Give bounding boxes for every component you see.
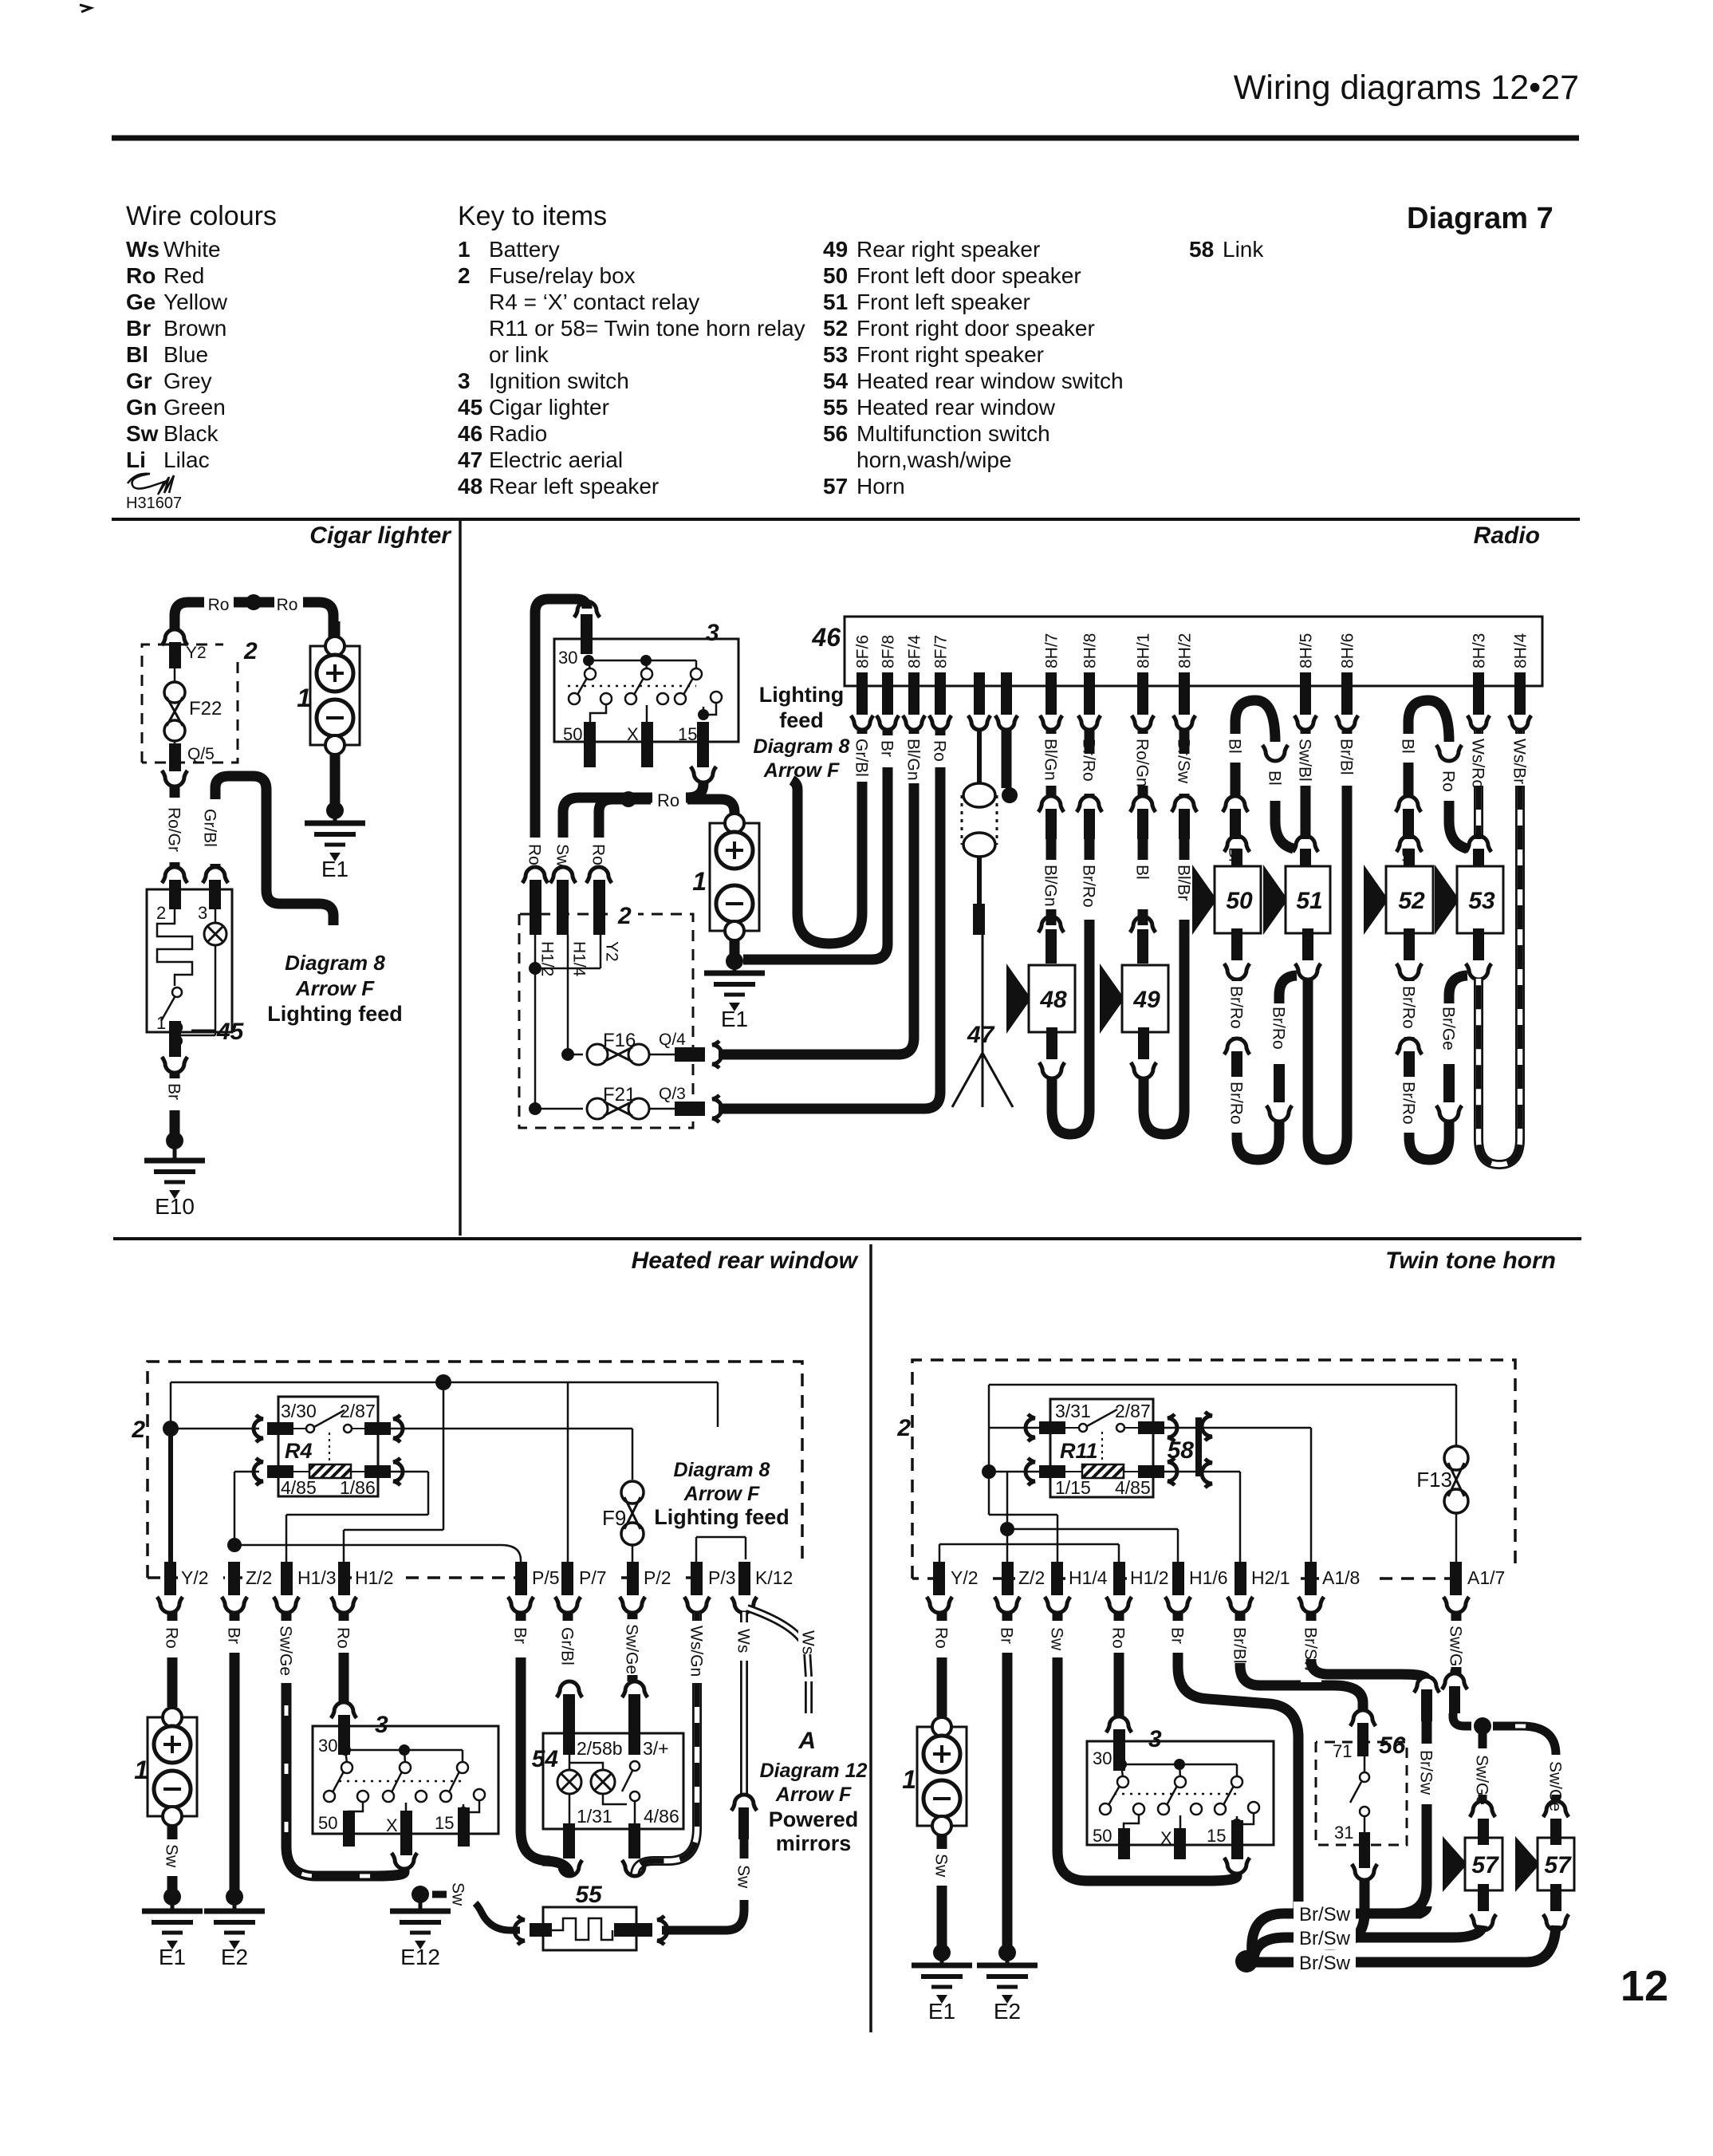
- svg-text:E12: E12: [400, 1945, 440, 1969]
- svg-text:Br/Sw: Br/Sw: [1299, 1953, 1351, 1974]
- svg-text:Br: Br: [126, 316, 151, 341]
- svg-text:F22: F22: [189, 698, 222, 719]
- svg-text:horn,wash/wipe: horn,wash/wipe: [856, 447, 1012, 472]
- svg-text:Br/Ro: Br/Ro: [1400, 986, 1418, 1029]
- svg-text:Sw/Bl: Sw/Bl: [1296, 739, 1314, 782]
- svg-text:55: 55: [823, 395, 848, 420]
- svg-text:Ro: Ro: [277, 596, 298, 614]
- svg-text:Front right speaker: Front right speaker: [856, 342, 1044, 367]
- svg-text:Lighting feed: Lighting feed: [654, 1505, 789, 1529]
- svg-text:Ro: Ro: [163, 1627, 181, 1649]
- svg-text:F21: F21: [603, 1084, 636, 1106]
- svg-text:48: 48: [458, 474, 482, 499]
- svg-text:3/+: 3/+: [643, 1738, 669, 1759]
- svg-text:47: 47: [458, 447, 482, 472]
- svg-text:Ro: Ro: [126, 263, 156, 288]
- svg-text:Powered: Powered: [769, 1807, 859, 1831]
- svg-text:Ws: Ws: [126, 237, 159, 262]
- svg-text:K/12: K/12: [755, 1567, 793, 1588]
- svg-text:Br/Sw: Br/Sw: [1299, 1904, 1351, 1925]
- svg-text:Y2: Y2: [603, 941, 621, 962]
- svg-text:Lilac: Lilac: [163, 447, 210, 472]
- svg-text:H1/3: H1/3: [297, 1567, 337, 1588]
- svg-text:Key to items: Key to items: [458, 201, 607, 231]
- svg-text:Cigar lighter: Cigar lighter: [309, 522, 452, 549]
- svg-text:Gr/Bl: Gr/Bl: [201, 809, 219, 847]
- svg-text:71: 71: [1333, 1741, 1352, 1761]
- svg-text:8H/1: 8H/1: [1134, 633, 1152, 668]
- svg-text:56: 56: [823, 421, 848, 446]
- svg-text:3: 3: [458, 369, 471, 393]
- svg-text:8H/7: 8H/7: [1042, 633, 1061, 668]
- svg-text:Cigar lighter: Cigar lighter: [489, 395, 609, 420]
- svg-text:3: 3: [706, 620, 719, 646]
- svg-text:Br/Bl: Br/Bl: [1337, 739, 1356, 775]
- svg-text:Gr/Bl: Gr/Bl: [853, 739, 871, 777]
- svg-text:E1: E1: [928, 1999, 955, 2024]
- svg-text:Arrow F: Arrow F: [295, 976, 375, 1000]
- svg-text:50: 50: [823, 263, 848, 288]
- svg-text:57: 57: [1544, 1852, 1572, 1878]
- svg-text:E1: E1: [159, 1945, 186, 1969]
- svg-text:X: X: [1160, 1828, 1172, 1848]
- svg-text:or link: or link: [489, 342, 549, 367]
- svg-text:H1/6: H1/6: [1189, 1567, 1228, 1588]
- svg-text:4/85: 4/85: [281, 1477, 317, 1498]
- svg-text:Sw: Sw: [163, 1844, 181, 1868]
- svg-text:Ws/Gn: Ws/Gn: [687, 1626, 706, 1677]
- svg-text:H1/2: H1/2: [1130, 1567, 1169, 1588]
- svg-text:Ws/Ro: Ws/Ro: [1469, 739, 1487, 789]
- svg-text:feed: feed: [779, 708, 824, 732]
- svg-text:4/86: 4/86: [644, 1806, 679, 1827]
- svg-text:31: 31: [1334, 1823, 1353, 1843]
- svg-text:Q/4: Q/4: [659, 1031, 686, 1049]
- svg-text:8H/4: 8H/4: [1511, 633, 1530, 668]
- svg-text:Ro/Gr: Ro/Gr: [165, 807, 183, 852]
- svg-text:White: White: [163, 237, 221, 262]
- svg-text:30: 30: [1093, 1748, 1112, 1768]
- svg-text:Fuse/relay box: Fuse/relay box: [489, 263, 636, 288]
- svg-text:1: 1: [156, 1013, 166, 1033]
- svg-text:1/86: 1/86: [340, 1477, 376, 1498]
- svg-text:Li: Li: [126, 447, 146, 472]
- svg-text:52: 52: [823, 316, 848, 341]
- svg-text:Br: Br: [878, 740, 896, 757]
- svg-text:Q/3: Q/3: [659, 1085, 686, 1103]
- svg-text:Battery: Battery: [489, 237, 560, 262]
- svg-text:54: 54: [532, 1746, 559, 1772]
- svg-text:Heated rear window: Heated rear window: [856, 395, 1056, 420]
- svg-text:8F/4: 8F/4: [905, 635, 923, 668]
- svg-text:Bl/Gn: Bl/Gn: [1042, 739, 1060, 781]
- svg-text:Bl: Bl: [1266, 771, 1284, 786]
- svg-text:Br: Br: [225, 1627, 243, 1644]
- svg-text:58: 58: [1168, 1437, 1195, 1464]
- svg-text:8F/8: 8F/8: [879, 635, 897, 668]
- svg-text:50: 50: [1093, 1826, 1112, 1846]
- svg-text:X: X: [627, 724, 639, 744]
- svg-text:Ro: Ro: [932, 1627, 951, 1649]
- svg-text:1: 1: [692, 867, 707, 896]
- svg-text:Y2: Y2: [186, 644, 207, 662]
- svg-text:Rear right speaker: Rear right speaker: [856, 237, 1040, 262]
- svg-text:1: 1: [458, 237, 471, 262]
- svg-text:Bl: Bl: [126, 342, 148, 367]
- svg-text:1/15: 1/15: [1055, 1477, 1091, 1498]
- svg-text:3/31: 3/31: [1055, 1401, 1091, 1421]
- svg-text:E1: E1: [721, 1007, 748, 1031]
- svg-text:Green: Green: [163, 395, 226, 420]
- svg-text:H31607: H31607: [126, 495, 182, 512]
- svg-text:A1/8: A1/8: [1322, 1567, 1360, 1588]
- svg-text:Link: Link: [1223, 237, 1264, 262]
- svg-text:2: 2: [156, 903, 166, 923]
- svg-text:56: 56: [1379, 1732, 1406, 1759]
- svg-text:Z/2: Z/2: [1018, 1567, 1045, 1588]
- svg-text:53: 53: [823, 342, 848, 367]
- svg-text:Front left door speaker: Front left door speaker: [856, 263, 1081, 288]
- svg-text:Rear left speaker: Rear left speaker: [489, 474, 659, 499]
- svg-text:53: 53: [1468, 888, 1495, 914]
- svg-text:57: 57: [823, 474, 848, 499]
- svg-text:50: 50: [1226, 888, 1253, 914]
- svg-text:Br/Ro: Br/Ro: [1400, 1082, 1418, 1125]
- svg-text:Ro: Ro: [334, 1627, 352, 1649]
- svg-text:Ro: Ro: [657, 790, 679, 810]
- svg-text:Ro: Ro: [589, 844, 608, 865]
- svg-text:Arrow F: Arrow F: [683, 1483, 760, 1505]
- svg-text:Y/2: Y/2: [951, 1567, 979, 1588]
- svg-text:Ro: Ro: [1109, 1627, 1128, 1649]
- svg-text:8H/3: 8H/3: [1470, 633, 1488, 668]
- svg-text:48: 48: [1039, 987, 1067, 1013]
- svg-text:Ro: Ro: [931, 740, 949, 762]
- svg-text:Grey: Grey: [163, 369, 212, 393]
- svg-text:Heated rear window switch: Heated rear window switch: [856, 369, 1124, 393]
- svg-text:P/2: P/2: [644, 1567, 671, 1588]
- svg-text:H1/4: H1/4: [1069, 1567, 1108, 1588]
- svg-text:Br/Bl: Br/Bl: [1231, 1627, 1249, 1664]
- svg-text:Diagram 7: Diagram 7: [1407, 202, 1554, 235]
- svg-text:8H/5: 8H/5: [1297, 633, 1315, 668]
- svg-text:Q/5: Q/5: [187, 745, 215, 763]
- svg-text:H1/4: H1/4: [570, 941, 589, 977]
- svg-text:50: 50: [563, 724, 582, 744]
- svg-text:Br: Br: [1168, 1627, 1187, 1644]
- svg-text:15: 15: [678, 724, 697, 744]
- svg-text:47: 47: [967, 1022, 995, 1048]
- svg-text:3: 3: [198, 903, 207, 923]
- svg-text:Sw/Ge: Sw/Ge: [277, 1626, 295, 1676]
- svg-text:R11 or 58= Twin tone horn rela: R11 or 58= Twin tone horn relay: [489, 316, 805, 341]
- svg-text:Br/Ro: Br/Ro: [1227, 1082, 1246, 1125]
- svg-text:1: 1: [134, 1756, 148, 1784]
- svg-text:51: 51: [823, 290, 848, 314]
- svg-text:mirrors: mirrors: [776, 1831, 852, 1855]
- svg-text:Radio: Radio: [1474, 522, 1540, 549]
- svg-text:Wire colours: Wire colours: [126, 201, 277, 231]
- svg-text:Ws/Br: Ws/Br: [1510, 739, 1529, 784]
- svg-text:49: 49: [1132, 987, 1160, 1013]
- svg-text:F13: F13: [1416, 1468, 1452, 1492]
- svg-text:8H/6: 8H/6: [1338, 633, 1357, 668]
- svg-text:2: 2: [617, 903, 632, 929]
- svg-text:Sw: Sw: [1048, 1627, 1066, 1651]
- svg-text:Diagram 8: Diagram 8: [285, 951, 385, 975]
- svg-text:8H/2: 8H/2: [1175, 633, 1194, 668]
- svg-text:H2/1: H2/1: [1251, 1567, 1290, 1588]
- svg-text:Bl/Gn: Bl/Gn: [904, 739, 923, 781]
- svg-text:Sw/Ge: Sw/Ge: [623, 1624, 641, 1674]
- svg-text:Ge: Ge: [126, 290, 156, 314]
- svg-text:Bl/Br: Bl/Br: [1175, 865, 1193, 901]
- svg-text:Heated rear window: Heated rear window: [632, 1247, 859, 1274]
- svg-text:8H/8: 8H/8: [1081, 633, 1099, 668]
- svg-text:12: 12: [1620, 1962, 1668, 2010]
- svg-text:H1/2: H1/2: [538, 941, 557, 976]
- svg-text:Sw: Sw: [734, 1865, 753, 1889]
- svg-text:30: 30: [318, 1736, 337, 1756]
- svg-text:Multifunction switch: Multifunction switch: [856, 421, 1050, 446]
- svg-text:Black: Black: [163, 421, 219, 446]
- svg-text:2: 2: [458, 263, 471, 288]
- svg-text:Front right door speaker: Front right door speaker: [856, 316, 1095, 341]
- svg-text:1/31: 1/31: [577, 1806, 612, 1827]
- svg-text:Br/Ro: Br/Ro: [1080, 865, 1098, 908]
- svg-text:51: 51: [1296, 888, 1322, 914]
- svg-text:2: 2: [131, 1417, 145, 1443]
- svg-text:Gr: Gr: [126, 369, 152, 393]
- svg-text:P/3: P/3: [708, 1567, 736, 1588]
- svg-text:2/58b: 2/58b: [577, 1738, 623, 1759]
- svg-text:Ro: Ro: [526, 844, 544, 865]
- svg-text:1: 1: [297, 684, 311, 712]
- svg-text:Diagram 12: Diagram 12: [760, 1760, 868, 1782]
- svg-text:Ro/Gn: Ro/Gn: [1133, 739, 1152, 787]
- svg-text:Diagram 8: Diagram 8: [754, 735, 850, 758]
- svg-text:F16: F16: [603, 1030, 636, 1051]
- svg-text:3: 3: [1148, 1726, 1162, 1752]
- svg-text:Ignition switch: Ignition switch: [489, 369, 629, 393]
- svg-text:Yellow: Yellow: [163, 290, 228, 314]
- svg-text:50: 50: [318, 1813, 337, 1833]
- svg-text:Lighting feed: Lighting feed: [267, 1002, 402, 1026]
- svg-text:Y/2: Y/2: [181, 1567, 209, 1588]
- svg-text:45: 45: [216, 1019, 245, 1045]
- svg-text:A: A: [797, 1728, 816, 1754]
- svg-text:A1/7: A1/7: [1467, 1567, 1505, 1588]
- svg-text:Br: Br: [998, 1627, 1016, 1644]
- svg-text:E2: E2: [994, 1999, 1021, 2024]
- svg-text:Electric aerial: Electric aerial: [489, 447, 623, 472]
- svg-text:57: 57: [1471, 1852, 1499, 1878]
- svg-text:3: 3: [375, 1712, 388, 1738]
- svg-text:Sw: Sw: [932, 1854, 951, 1878]
- svg-text:Sw: Sw: [553, 844, 572, 868]
- svg-text:Ws: Ws: [799, 1630, 817, 1654]
- svg-text:Diagram 8: Diagram 8: [674, 1459, 770, 1481]
- svg-text:Blue: Blue: [163, 342, 208, 367]
- svg-text:58: 58: [1189, 237, 1214, 262]
- svg-text:2/87: 2/87: [340, 1401, 376, 1421]
- svg-text:Ro: Ro: [1439, 771, 1458, 792]
- svg-text:E2: E2: [221, 1945, 248, 1969]
- svg-text:X: X: [386, 1815, 398, 1835]
- svg-text:Br: Br: [511, 1627, 530, 1644]
- svg-text:4/85: 4/85: [1115, 1477, 1151, 1498]
- svg-text:R11: R11: [1060, 1439, 1098, 1463]
- svg-text:Bl: Bl: [1399, 739, 1417, 754]
- svg-text:3/30: 3/30: [281, 1401, 317, 1421]
- svg-text:Br/Sw: Br/Sw: [1299, 1928, 1351, 1949]
- svg-text:Horn: Horn: [856, 474, 905, 499]
- svg-text:2: 2: [896, 1415, 911, 1441]
- svg-text:H1/2: H1/2: [355, 1567, 394, 1588]
- svg-text:55: 55: [575, 1882, 603, 1908]
- svg-text:15: 15: [1207, 1826, 1226, 1846]
- svg-text:Br: Br: [165, 1083, 183, 1100]
- svg-text:Bl: Bl: [1226, 739, 1244, 754]
- svg-text:F9: F9: [602, 1506, 626, 1530]
- svg-text:46: 46: [458, 421, 482, 446]
- svg-text:Gn: Gn: [126, 395, 157, 420]
- svg-text:Sw: Sw: [449, 1882, 467, 1906]
- svg-text:Sw: Sw: [126, 421, 159, 446]
- svg-text:Ro: Ro: [208, 596, 230, 614]
- svg-text:Z/2: Z/2: [246, 1567, 272, 1588]
- svg-text:46: 46: [811, 623, 841, 652]
- svg-text:Br/Sw: Br/Sw: [1417, 1750, 1435, 1795]
- svg-text:Gr/Bl: Gr/Bl: [558, 1627, 577, 1665]
- svg-text:Br/Ro: Br/Ro: [1270, 1007, 1288, 1050]
- svg-text:2/87: 2/87: [1115, 1401, 1151, 1421]
- svg-text:Front left speaker: Front left speaker: [856, 290, 1030, 314]
- svg-text:E1: E1: [321, 857, 349, 881]
- svg-text:R4: R4: [285, 1439, 313, 1463]
- svg-text:54: 54: [823, 369, 849, 393]
- svg-text:P/5: P/5: [532, 1567, 560, 1588]
- svg-text:Bl/Gn: Bl/Gn: [1042, 865, 1060, 907]
- svg-text:52: 52: [1398, 888, 1425, 914]
- svg-text:Arrow F: Arrow F: [763, 759, 840, 782]
- svg-text:P/7: P/7: [579, 1567, 607, 1588]
- svg-text:Wiring diagrams 12•27: Wiring diagrams 12•27: [1234, 69, 1579, 107]
- svg-text:8F/6: 8F/6: [853, 635, 872, 668]
- svg-text:30: 30: [558, 648, 577, 668]
- svg-text:Ws: Ws: [734, 1629, 753, 1653]
- svg-text:E10: E10: [155, 1194, 195, 1219]
- svg-text:15: 15: [435, 1813, 454, 1833]
- svg-text:2: 2: [243, 638, 258, 664]
- svg-text:Br/Ro: Br/Ro: [1227, 986, 1246, 1029]
- svg-text:1: 1: [902, 1765, 916, 1794]
- svg-text:Radio: Radio: [489, 421, 547, 446]
- svg-text:Bl: Bl: [1133, 865, 1152, 880]
- svg-text:Br/Ge: Br/Ge: [1439, 1007, 1458, 1050]
- svg-text:49: 49: [823, 237, 848, 262]
- svg-text:8F/7: 8F/7: [931, 635, 950, 668]
- svg-text:R4 = ‘X’ contact relay: R4 = ‘X’ contact relay: [489, 290, 699, 314]
- svg-text:Brown: Brown: [163, 316, 226, 341]
- svg-text:Lighting: Lighting: [759, 683, 844, 707]
- svg-text:Twin tone horn: Twin tone horn: [1385, 1247, 1556, 1274]
- svg-text:Red: Red: [163, 263, 204, 288]
- svg-text:Arrow F: Arrow F: [775, 1784, 852, 1806]
- svg-text:45: 45: [458, 395, 482, 420]
